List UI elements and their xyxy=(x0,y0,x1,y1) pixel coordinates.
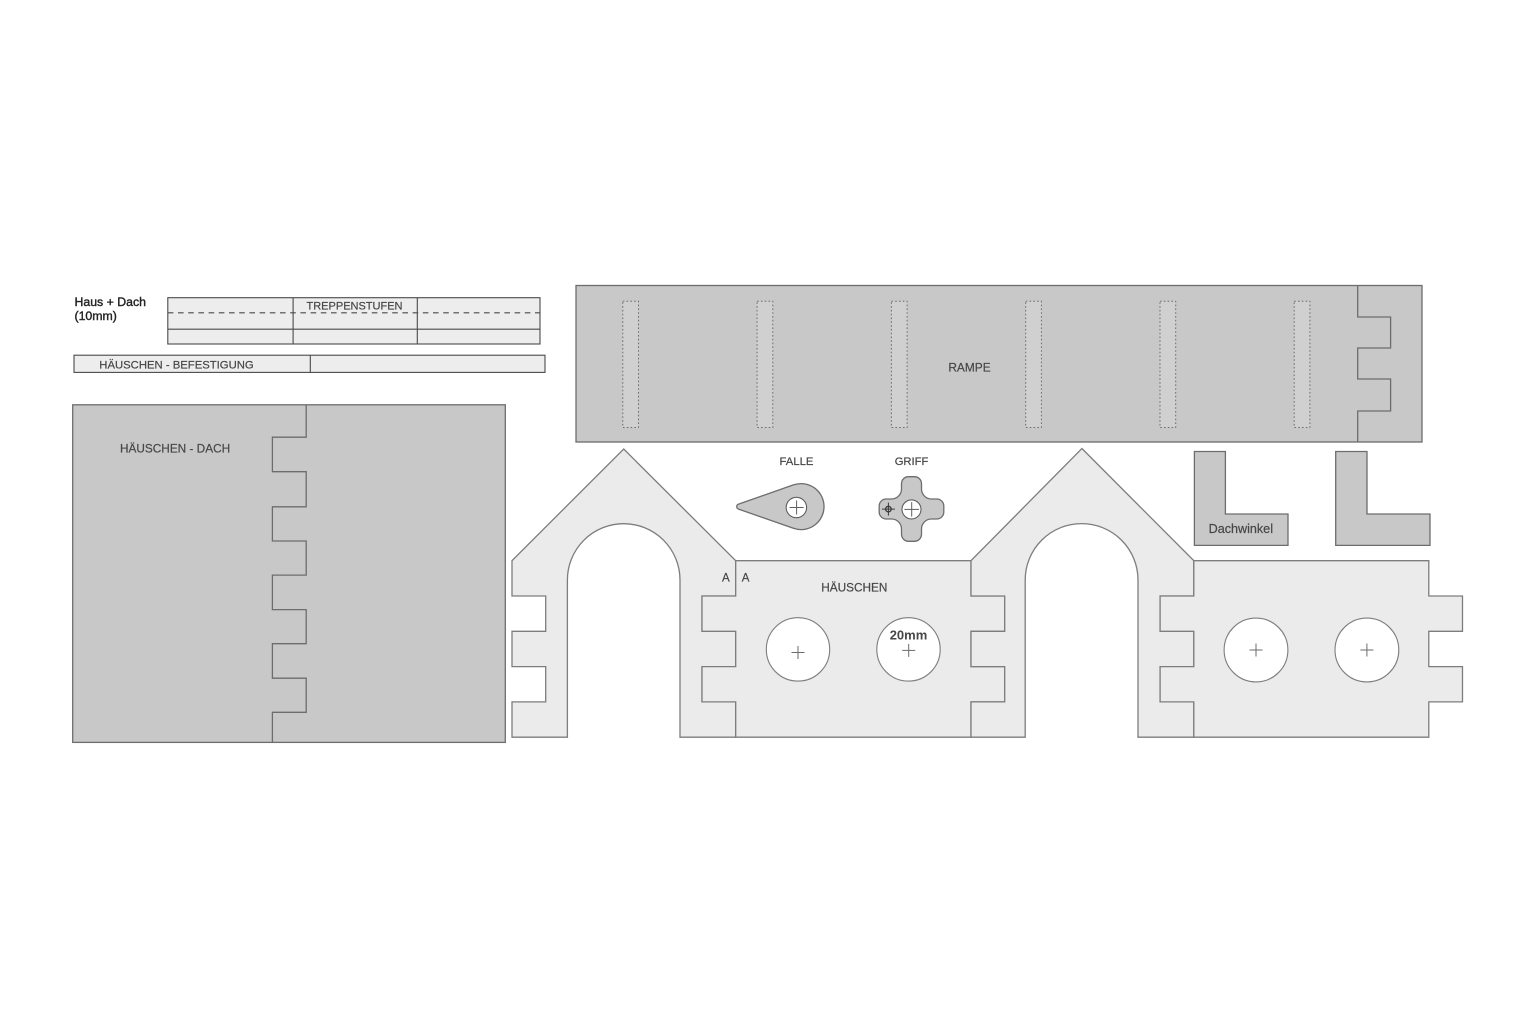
svg-text:HÄUSCHEN - BEFESTIGUNG: HÄUSCHEN - BEFESTIGUNG xyxy=(99,360,253,372)
svg-text:Haus + Dach: Haus + Dach xyxy=(75,295,147,309)
svg-text:20mm: 20mm xyxy=(890,628,928,643)
svg-text:HÄUSCHEN - DACH: HÄUSCHEN - DACH xyxy=(120,442,230,456)
svg-text:A: A xyxy=(722,572,730,584)
svg-text:RAMPE: RAMPE xyxy=(948,361,990,375)
svg-text:(10mm): (10mm) xyxy=(75,309,117,323)
svg-text:FALLE: FALLE xyxy=(780,456,814,468)
svg-text:GRIFF: GRIFF xyxy=(895,456,929,468)
svg-text:TREPPENSTUFEN: TREPPENSTUFEN xyxy=(307,300,403,312)
svg-text:A: A xyxy=(742,572,750,584)
svg-text:Dachwinkel: Dachwinkel xyxy=(1209,522,1273,536)
svg-text:HÄUSCHEN: HÄUSCHEN xyxy=(821,580,887,594)
